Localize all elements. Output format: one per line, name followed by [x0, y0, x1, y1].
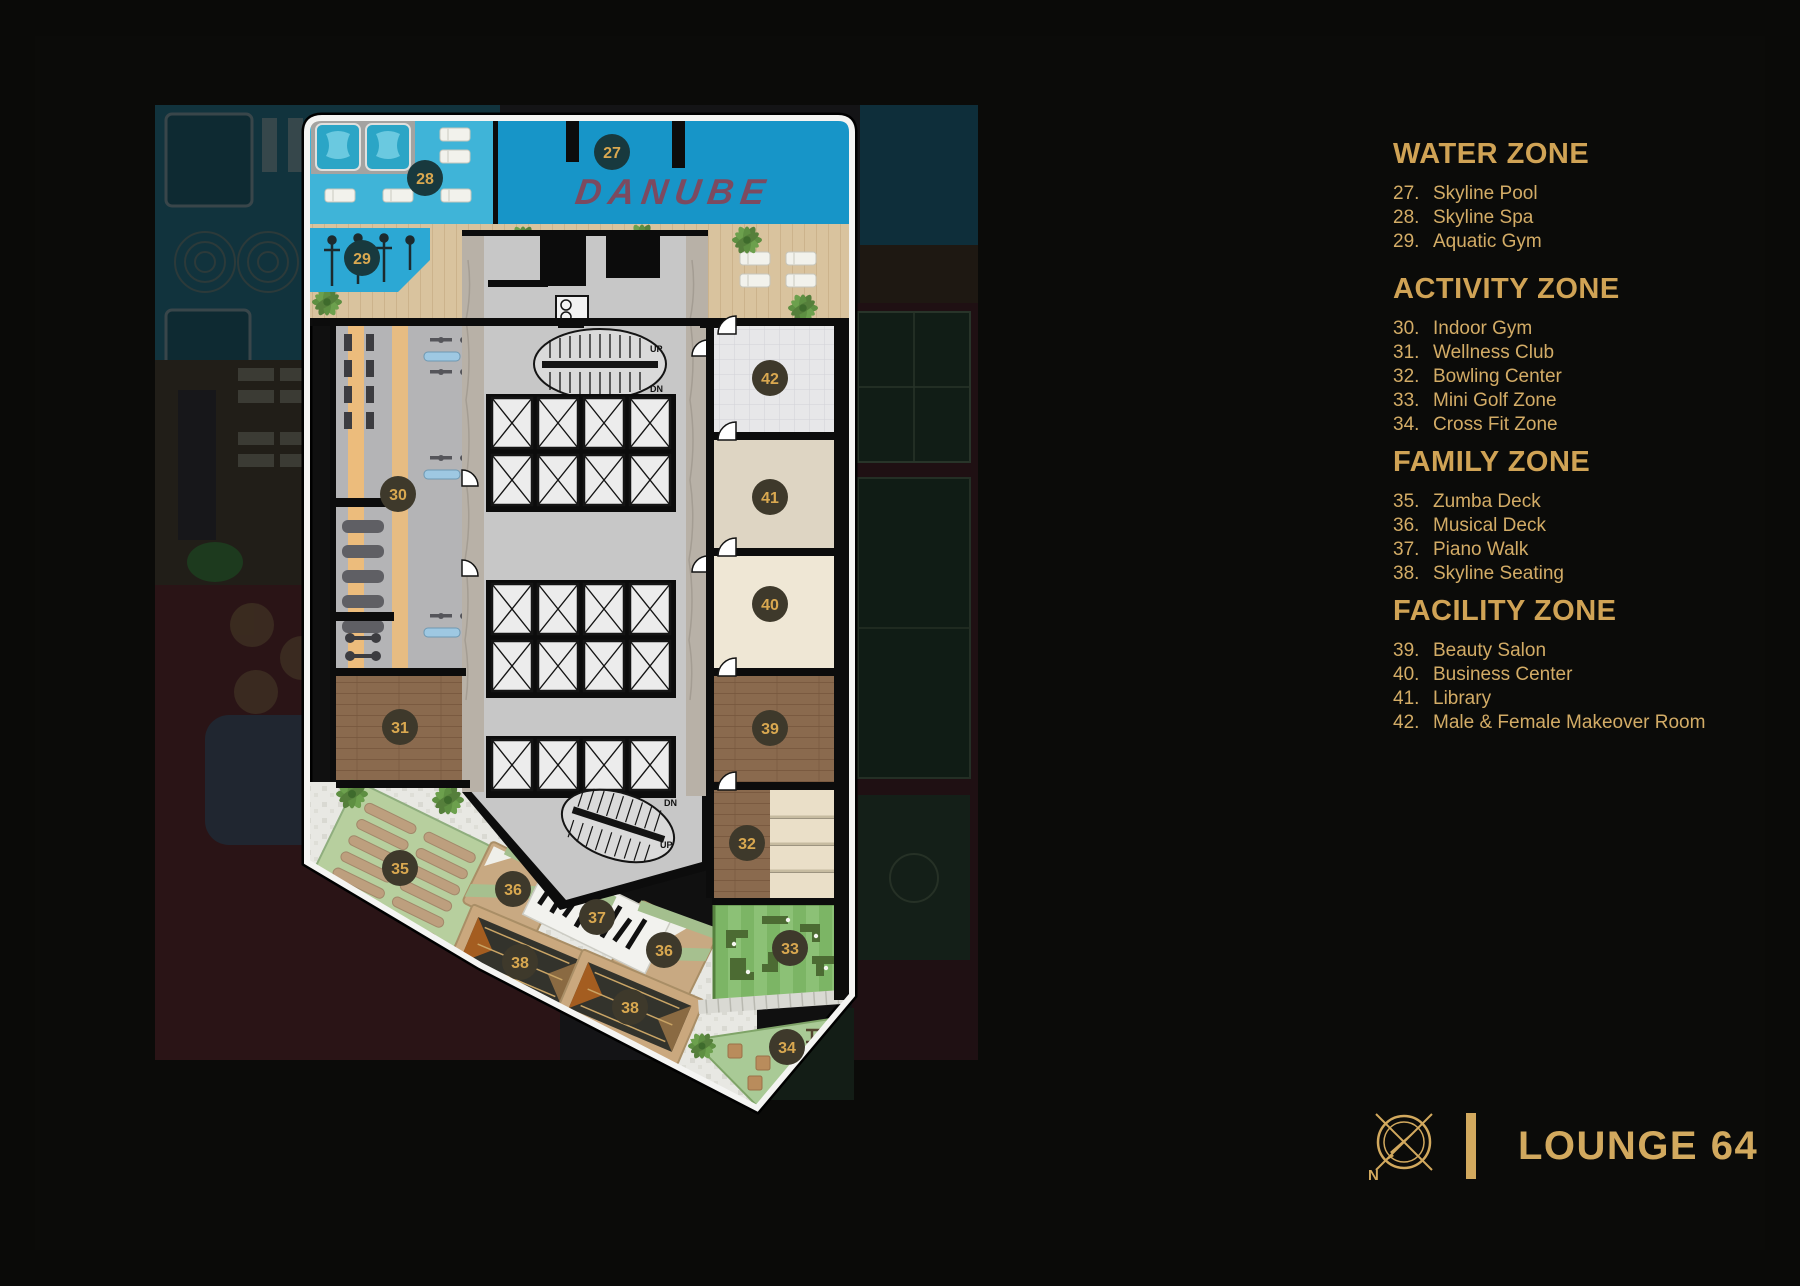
badge-33: 33: [781, 941, 799, 958]
badge-29: 29: [353, 251, 371, 268]
legend-title-water: WATER ZONE: [1393, 138, 1723, 170]
page-title: LOUNGE 64: [1518, 1124, 1758, 1169]
legend-title-activity: ACTIVITY ZONE: [1393, 273, 1723, 305]
legend-item: 29.Aquatic Gym: [1393, 230, 1723, 254]
skyline-pool-area: DANUBE: [493, 118, 852, 224]
badge-27: 27: [603, 145, 621, 162]
badge-34: 34: [778, 1040, 796, 1057]
legend-item: 41.Library: [1393, 687, 1723, 711]
building-core: UP DN: [462, 230, 708, 910]
legend-item: 27.Skyline Pool: [1393, 182, 1723, 206]
legend-section-facility: FACILITY ZONE 39.Beauty Salon 40.Busines…: [1393, 595, 1723, 735]
badge-39: 39: [761, 721, 779, 738]
badge-36b: 36: [655, 943, 673, 960]
legend-section-water: WATER ZONE 27.Skyline Pool 28.Skyline Sp…: [1393, 138, 1723, 254]
legend-item: 39.Beauty Salon: [1393, 639, 1723, 663]
legend-item: 35.Zumba Deck: [1393, 490, 1723, 514]
badge-28: 28: [416, 171, 434, 188]
legend-item: 30.Indoor Gym: [1393, 317, 1723, 341]
pool-watermark: DANUBE: [573, 171, 775, 212]
svg-text:UP: UP: [650, 344, 663, 354]
badge-30: 30: [389, 487, 407, 504]
legend-item: 38.Skyline Seating: [1393, 562, 1723, 586]
footer: N LOUNGE 64: [1360, 1104, 1758, 1188]
legend-item: 40.Business Center: [1393, 663, 1723, 687]
badge-32: 32: [738, 836, 756, 853]
badge-37: 37: [588, 910, 606, 927]
legend-title-facility: FACILITY ZONE: [1393, 595, 1723, 627]
badge-40: 40: [761, 597, 779, 614]
legend-section-activity: ACTIVITY ZONE 30.Indoor Gym 31.Wellness …: [1393, 273, 1723, 437]
legend-item: 33.Mini Golf Zone: [1393, 389, 1723, 413]
badge-35: 35: [391, 861, 409, 878]
legend-item: 37.Piano Walk: [1393, 538, 1723, 562]
badge-38b: 38: [621, 1000, 639, 1017]
divider-bar: [1466, 1113, 1476, 1179]
legend-item: 31.Wellness Club: [1393, 341, 1723, 365]
badge-42: 42: [761, 371, 779, 388]
svg-text:DN: DN: [664, 798, 677, 808]
svg-text:UP: UP: [660, 840, 673, 850]
north-label: N: [1368, 1167, 1379, 1184]
compass-icon: N: [1360, 1104, 1444, 1188]
presentation-slide: DANUBE: [0, 0, 1800, 1286]
legend-item: 34.Cross Fit Zone: [1393, 413, 1723, 437]
legend-title-family: FAMILY ZONE: [1393, 446, 1723, 478]
legend-item: 36.Musical Deck: [1393, 514, 1723, 538]
badge-36a: 36: [504, 882, 522, 899]
legend-item: 28.Skyline Spa: [1393, 206, 1723, 230]
legend-item: 32.Bowling Center: [1393, 365, 1723, 389]
skyline-spa-area: [307, 118, 493, 224]
badge-38a: 38: [511, 955, 529, 972]
legend-section-family: FAMILY ZONE 35.Zumba Deck 36.Musical Dec…: [1393, 446, 1723, 586]
legend-panel: WATER ZONE 27.Skyline Pool 28.Skyline Sp…: [1393, 138, 1723, 754]
legend-item: 42.Male & Female Makeover Room: [1393, 711, 1723, 735]
svg-text:DN: DN: [650, 384, 663, 394]
badge-31: 31: [391, 720, 409, 737]
badge-41: 41: [761, 490, 779, 507]
